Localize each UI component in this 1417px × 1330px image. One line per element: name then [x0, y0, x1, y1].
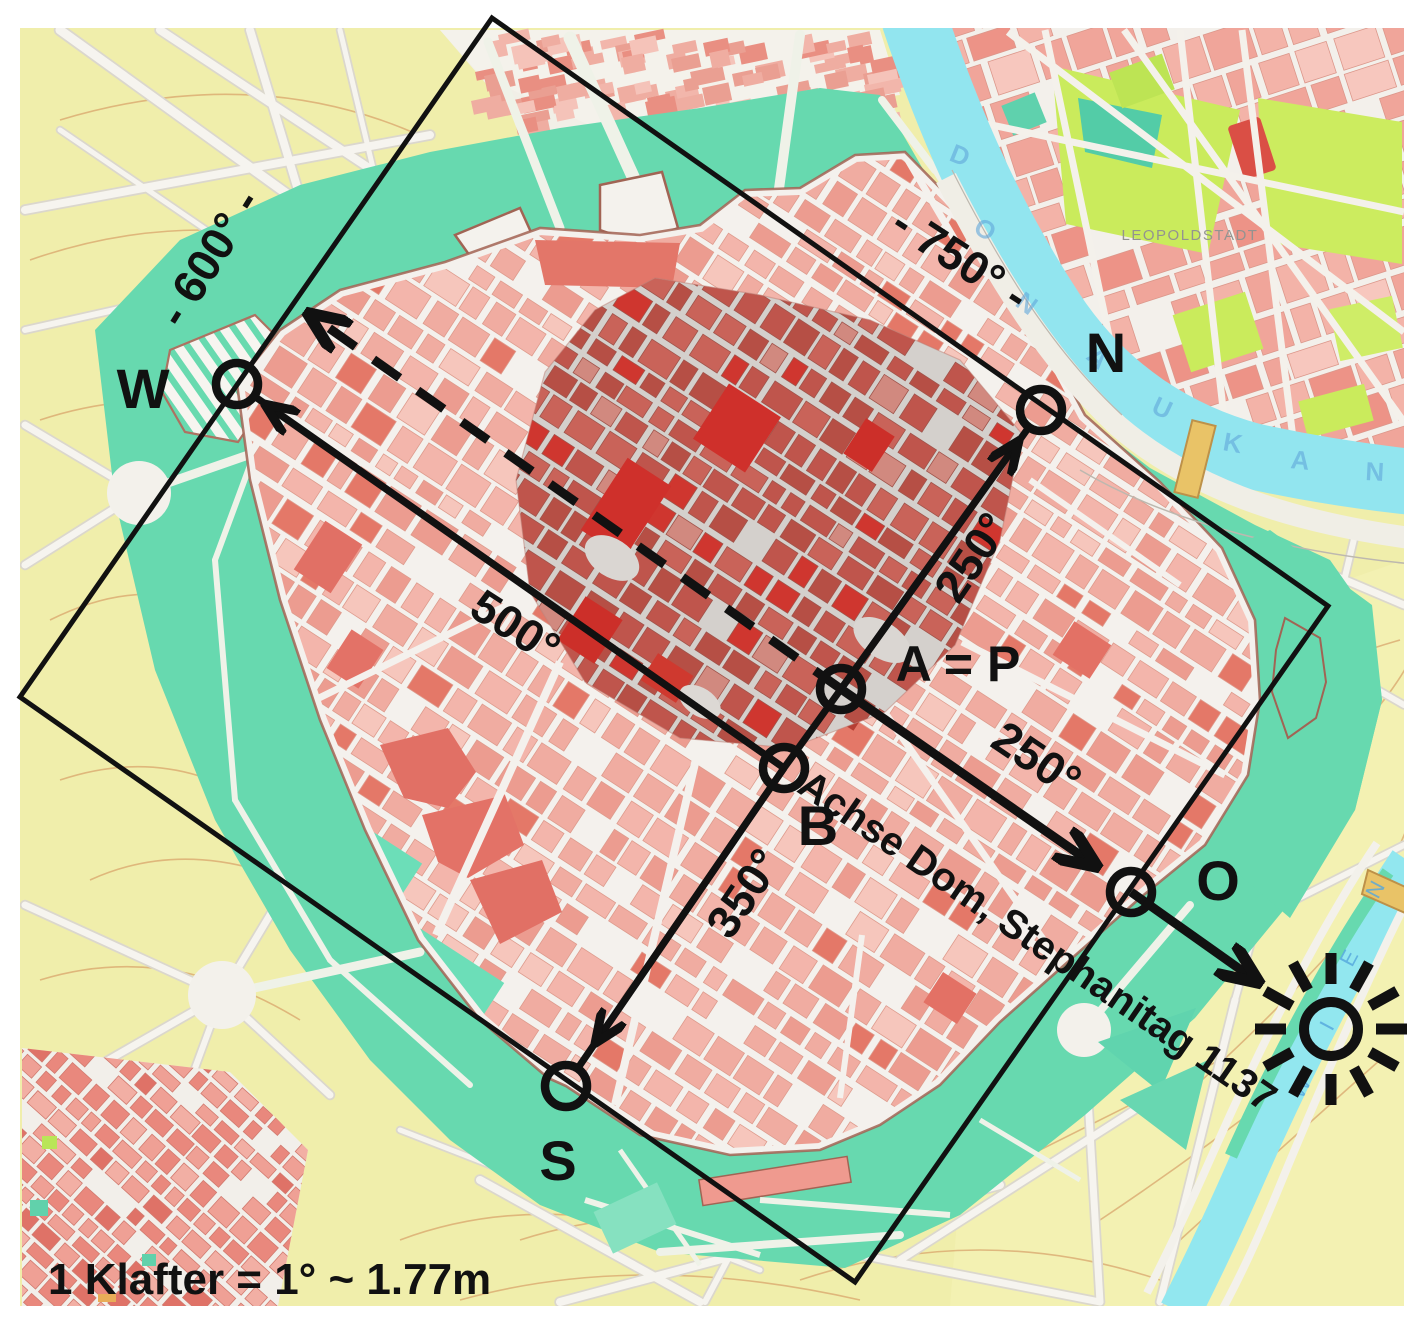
svg-text:N: N	[1086, 321, 1126, 384]
svg-text:S: S	[539, 1129, 576, 1192]
svg-text:W: W	[117, 357, 170, 420]
svg-text:O: O	[1196, 849, 1240, 912]
svg-text:1 Klafter = 1° ~ 1.77m: 1 Klafter = 1° ~ 1.77m	[48, 1255, 491, 1304]
svg-text:A = P: A = P	[896, 636, 1021, 692]
